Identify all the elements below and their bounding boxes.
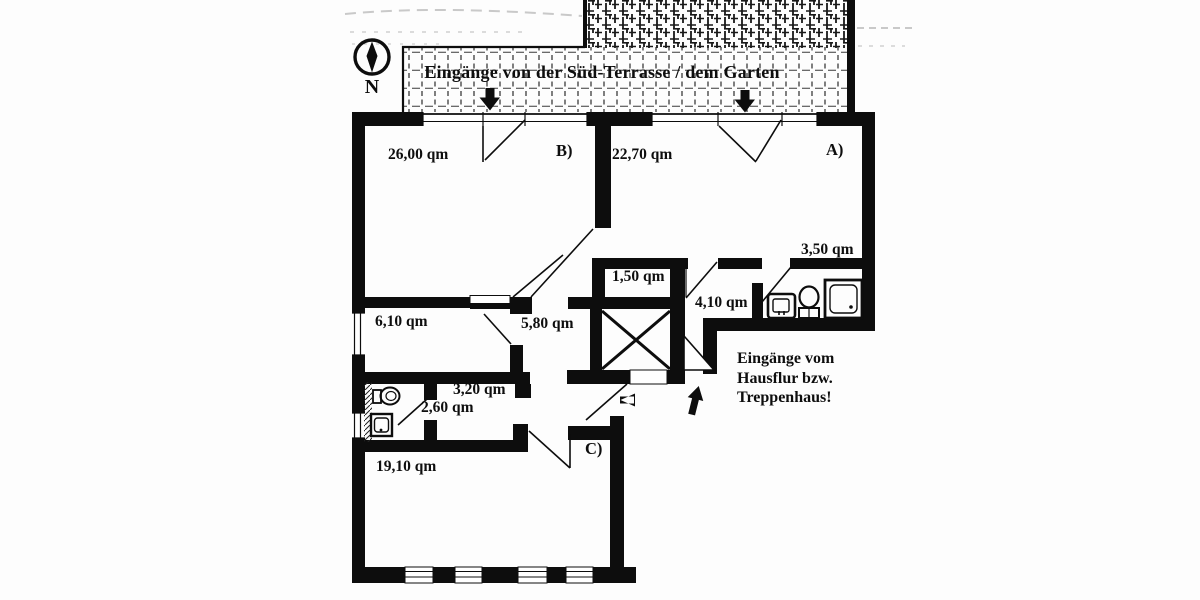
bath-a-area-label: 3,50 qm <box>801 241 854 258</box>
wall-notch <box>470 296 510 304</box>
corridor-320-area-label: 3,20 qm <box>453 381 506 398</box>
bath-c-area-label: 2,60 qm <box>421 399 474 416</box>
walls <box>352 112 875 583</box>
terrace-banner: Eingänge von der Süd-Terrasse / dem Gart… <box>402 63 802 83</box>
stairwell-entry-note: Eingänge vom Hausflur bzw. Treppenhaus! <box>737 349 834 408</box>
hall-entry-arrow-left-icon <box>620 394 635 407</box>
windows <box>352 112 817 583</box>
bathroom-c-fixtures <box>364 382 400 442</box>
toilet-icon <box>373 388 400 405</box>
corridor-a-area-label: 4,10 qm <box>695 294 748 311</box>
hall-area-label: 5,80 qm <box>521 315 574 332</box>
room-a-area-label: 22,70 qm <box>612 146 672 163</box>
room-c-area-label: 19,10 qm <box>376 458 436 475</box>
note-line-3: Treppenhaus! <box>737 388 834 408</box>
sink-icon <box>371 414 392 436</box>
window-left-bath <box>352 413 365 438</box>
shower-icon <box>825 280 862 318</box>
threshold <box>630 370 667 384</box>
stairwell-shaft <box>602 311 670 369</box>
floorplan-page: N Eingänge von der Süd-Terrasse / dem Ga… <box>0 0 1200 600</box>
room-610-area-label: 6,10 qm <box>375 313 428 330</box>
toilet-icon <box>799 287 819 319</box>
floorplan-drawing <box>0 0 1200 600</box>
compass-north-label: N <box>359 76 385 98</box>
compass-icon <box>355 40 389 74</box>
bathroom-a-fixtures <box>768 280 862 318</box>
note-line-2: Hausflur bzw. <box>737 369 834 389</box>
window-top-b <box>423 112 587 126</box>
room-b-area-label: 26,00 qm <box>388 146 448 163</box>
note-line-1: Eingänge vom <box>737 349 834 369</box>
stair-entry-arrow-up-icon <box>684 384 707 416</box>
closet-area-label: 1,50 qm <box>612 268 665 285</box>
room-a-tag: A) <box>826 141 843 159</box>
sink-icon <box>768 294 795 318</box>
room-b-tag: B) <box>556 142 573 160</box>
room-c-tag: C) <box>585 440 602 458</box>
window-top-a <box>652 112 817 126</box>
window-left-610 <box>352 313 365 355</box>
